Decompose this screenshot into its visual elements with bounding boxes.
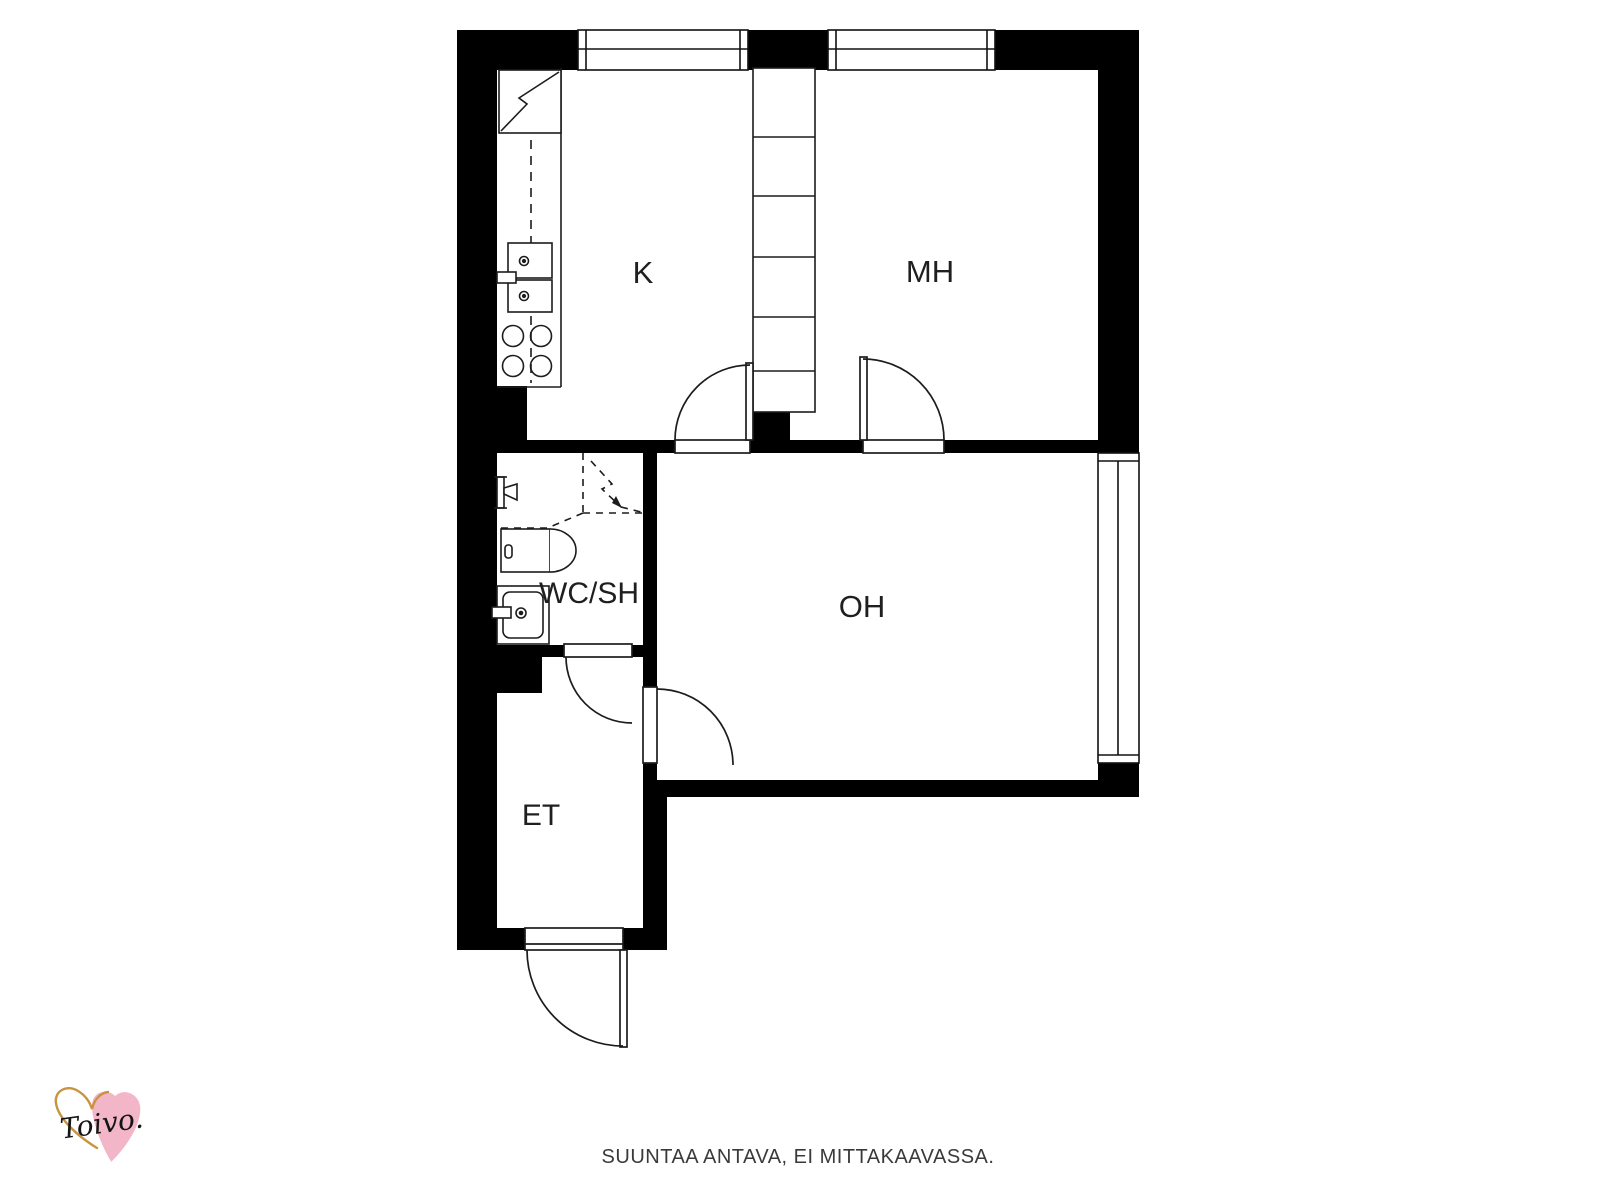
floorplan-page: K MH OH WC/SH ET Toivo. SUUNTAA ANTAVA, …	[0, 0, 1600, 1200]
door-bathroom	[564, 644, 632, 723]
wall-entry-right	[643, 797, 667, 950]
wall-right-upper	[1098, 30, 1139, 453]
door-bedroom	[860, 357, 944, 453]
door-living-room	[643, 687, 733, 765]
window-bedroom	[828, 30, 995, 70]
wall-chunk-entry-top	[457, 645, 542, 693]
kitchen-fixtures	[497, 68, 561, 387]
wall-band-bath-right	[632, 645, 643, 657]
window-living-room	[1098, 453, 1139, 763]
floorplan-svg: K MH OH WC/SH ET Toivo. SUUNTAA ANTAVA, …	[0, 0, 1600, 1200]
wall-below-oh-door	[643, 763, 657, 780]
wall-right-below-window	[1098, 763, 1139, 797]
doors	[525, 357, 944, 1047]
wall-living-bottom	[643, 780, 1139, 797]
footer-disclaimer: SUUNTAA ANTAVA, EI MITTAKAAVASSA.	[602, 1146, 995, 1168]
door-entrance	[525, 928, 627, 1047]
wall-chunk-closet	[753, 412, 790, 440]
shower-enclosure	[501, 453, 643, 532]
wall-entry-bottom-right	[623, 928, 667, 950]
door-kitchen	[675, 363, 753, 453]
shower-arrowhead	[612, 496, 622, 508]
logo-brand: Toivo.	[58, 1101, 145, 1145]
wall-band-bedroom	[944, 440, 1139, 453]
stove-icon	[503, 326, 552, 377]
room-label-kitchen: K	[633, 255, 654, 290]
bathroom-fixtures	[492, 453, 643, 644]
wall-left	[457, 30, 497, 950]
shower-head-icon	[494, 477, 517, 508]
kitchen-sink-icon	[497, 243, 552, 312]
room-label-bedroom: MH	[906, 254, 954, 289]
wall-top-middle	[748, 30, 828, 70]
fridge-icon	[499, 70, 561, 133]
windows	[578, 30, 1139, 763]
toilet-icon	[501, 529, 576, 572]
closet-shelves	[753, 68, 815, 412]
wall-bath-living	[643, 453, 657, 687]
room-label-entry: ET	[522, 799, 560, 832]
logo: Toivo.	[56, 1088, 145, 1164]
wall-band-center	[750, 440, 863, 453]
wall-band-kitchen	[497, 440, 675, 453]
wall-entry-bottom-left	[457, 928, 525, 950]
room-label-bathroom: WC/SH	[539, 577, 639, 610]
window-kitchen	[578, 30, 748, 70]
wall-band-bath-left	[542, 645, 564, 657]
room-label-living-room: OH	[839, 589, 886, 624]
